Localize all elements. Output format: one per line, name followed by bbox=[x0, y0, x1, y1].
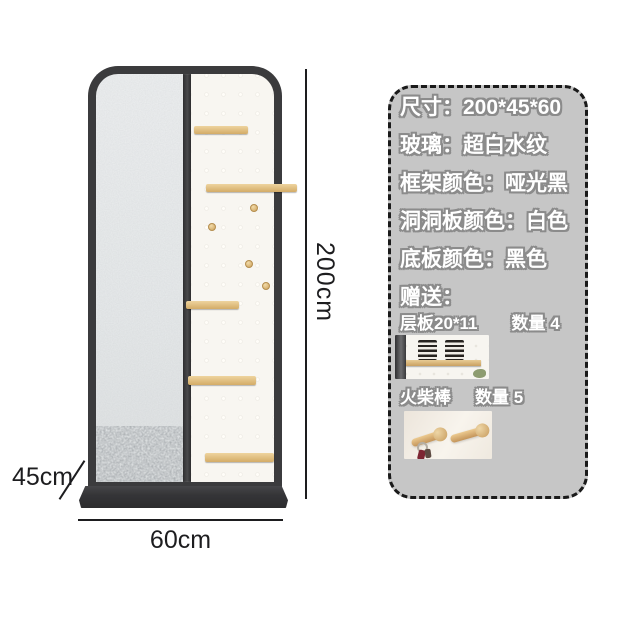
plant-decor bbox=[473, 369, 486, 378]
wood-peg bbox=[262, 282, 270, 290]
photo-frame-bar bbox=[395, 335, 406, 379]
wood-shelf bbox=[188, 376, 256, 385]
depth-dimension-label: 45cm bbox=[12, 463, 73, 492]
wood-shelf bbox=[205, 453, 274, 462]
gift2-name: 火柴棒 bbox=[400, 387, 451, 409]
gift1-name: 层板20*11 bbox=[400, 313, 478, 335]
gift-matchstick-photo bbox=[404, 411, 492, 459]
spec-glass: 玻璃：超白水纹 bbox=[400, 132, 577, 159]
height-dimension-line bbox=[305, 69, 307, 499]
spacer bbox=[478, 313, 512, 335]
wood-peg bbox=[250, 204, 258, 212]
gift-heading: 赠送： bbox=[400, 284, 577, 311]
spec-base-color: 底板颜色：黑色 bbox=[400, 246, 577, 273]
spacer bbox=[451, 387, 475, 409]
spec-size: 尺寸：200*45*60 bbox=[400, 94, 577, 121]
height-dimension-label: 200cm bbox=[310, 242, 339, 322]
matchstick-peg bbox=[450, 427, 484, 444]
wood-peg bbox=[208, 223, 216, 231]
width-dimension-line bbox=[78, 519, 283, 521]
gift2-row: 火柴棒 数量 5 bbox=[400, 387, 577, 409]
striped-bowl-stack bbox=[445, 340, 464, 360]
photo-wood-shelf bbox=[406, 360, 481, 366]
gift1-quantity: 数量 4 bbox=[512, 313, 560, 335]
wood-shelf bbox=[186, 301, 239, 309]
base-platform bbox=[79, 486, 288, 508]
gift-shelf-photo bbox=[395, 335, 489, 379]
product-image: 200cm 45cm 60cm 尺寸：200*45*60 玻璃：超白水纹 框架颜… bbox=[0, 0, 640, 640]
spec-pegboard-color: 洞洞板颜色：白色 bbox=[400, 208, 577, 235]
spec-frame-color: 框架颜色：哑光黑 bbox=[400, 170, 577, 197]
black-frame bbox=[88, 66, 282, 490]
wood-rail bbox=[194, 126, 248, 134]
peg-ball-end bbox=[474, 422, 491, 439]
peg-ball-end bbox=[431, 426, 449, 444]
gift1-row: 层板20*11 数量 4 bbox=[400, 313, 577, 335]
spec-panel: 尺寸：200*45*60 玻璃：超白水纹 框架颜色：哑光黑 洞洞板颜色：白色 底… bbox=[388, 85, 588, 499]
width-dimension-label: 60cm bbox=[78, 526, 283, 555]
wood-peg bbox=[245, 260, 253, 268]
gift2-quantity: 数量 5 bbox=[475, 387, 523, 409]
striped-bowl-stack bbox=[418, 340, 437, 360]
wood-rail bbox=[206, 184, 297, 192]
key bbox=[424, 449, 431, 459]
